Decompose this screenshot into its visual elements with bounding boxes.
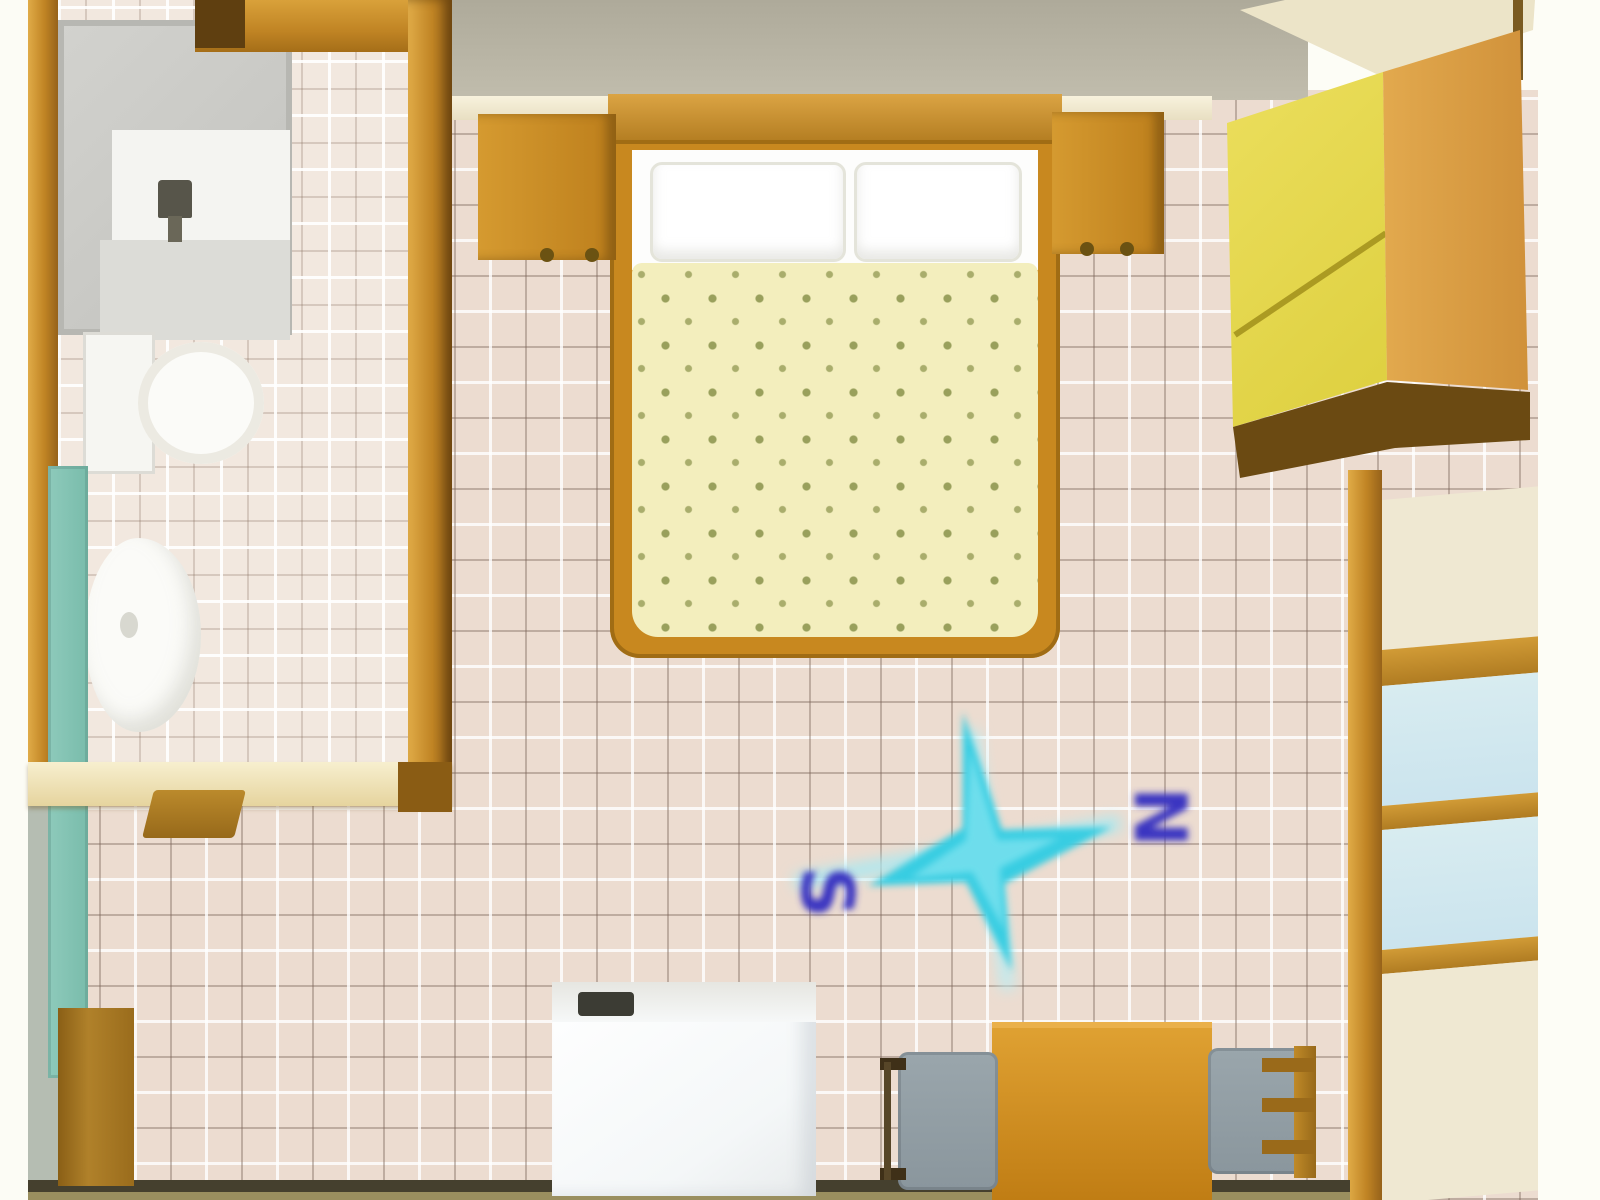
outside-margin-right [1538, 0, 1600, 1200]
shower-tray [112, 130, 290, 240]
bathroom-wall-vertical [408, 0, 452, 800]
outside-area-top [408, 0, 1308, 100]
toilet-bowl [138, 342, 264, 464]
floor-plan-scene: S N [0, 0, 1600, 1200]
nightstand-right-foot-a [1080, 242, 1094, 256]
compass: S N [700, 640, 1220, 1040]
side-cabinet [58, 1008, 134, 1186]
chair-left-arm-rail [884, 1062, 891, 1180]
bed-duvet [632, 263, 1038, 637]
chair-left [898, 1052, 998, 1190]
nightstand-right-foot-b [1120, 242, 1134, 256]
nightstand-left [478, 114, 616, 260]
window-pane-lower [1382, 816, 1538, 950]
nightstand-left-foot-b [585, 248, 599, 262]
window-wall-post [1348, 470, 1382, 1200]
compass-south-label: S [785, 866, 869, 918]
shower-fixture-stem [168, 216, 182, 242]
nightstand-right [1052, 112, 1164, 254]
pillow-left [650, 162, 846, 262]
compass-north-label: N [1118, 787, 1202, 847]
shower-fixture-icon [158, 180, 192, 218]
pillow-right [854, 162, 1022, 262]
bathroom-top-beam-end [195, 0, 245, 48]
outside-margin-left [0, 0, 28, 1200]
bathroom-wall-corner [398, 762, 452, 812]
window-panel-top [1382, 486, 1538, 650]
desk [992, 1022, 1212, 1200]
nightstand-left-foot-a [540, 248, 554, 262]
bathroom-door-leaf [142, 790, 246, 838]
wardrobe-side [1383, 20, 1530, 392]
window-wall-panels [1382, 456, 1538, 1200]
shower-bench [100, 240, 290, 340]
washbasin-drain [120, 612, 138, 638]
refrigerator-handle [578, 992, 634, 1016]
chair-right-rung-top [1262, 1058, 1314, 1072]
window-pane-upper [1382, 672, 1538, 806]
chair-right-rung-bottom [1262, 1140, 1314, 1154]
chair-right-rung-mid [1262, 1098, 1314, 1112]
window-panel-bottom [1382, 960, 1538, 1200]
